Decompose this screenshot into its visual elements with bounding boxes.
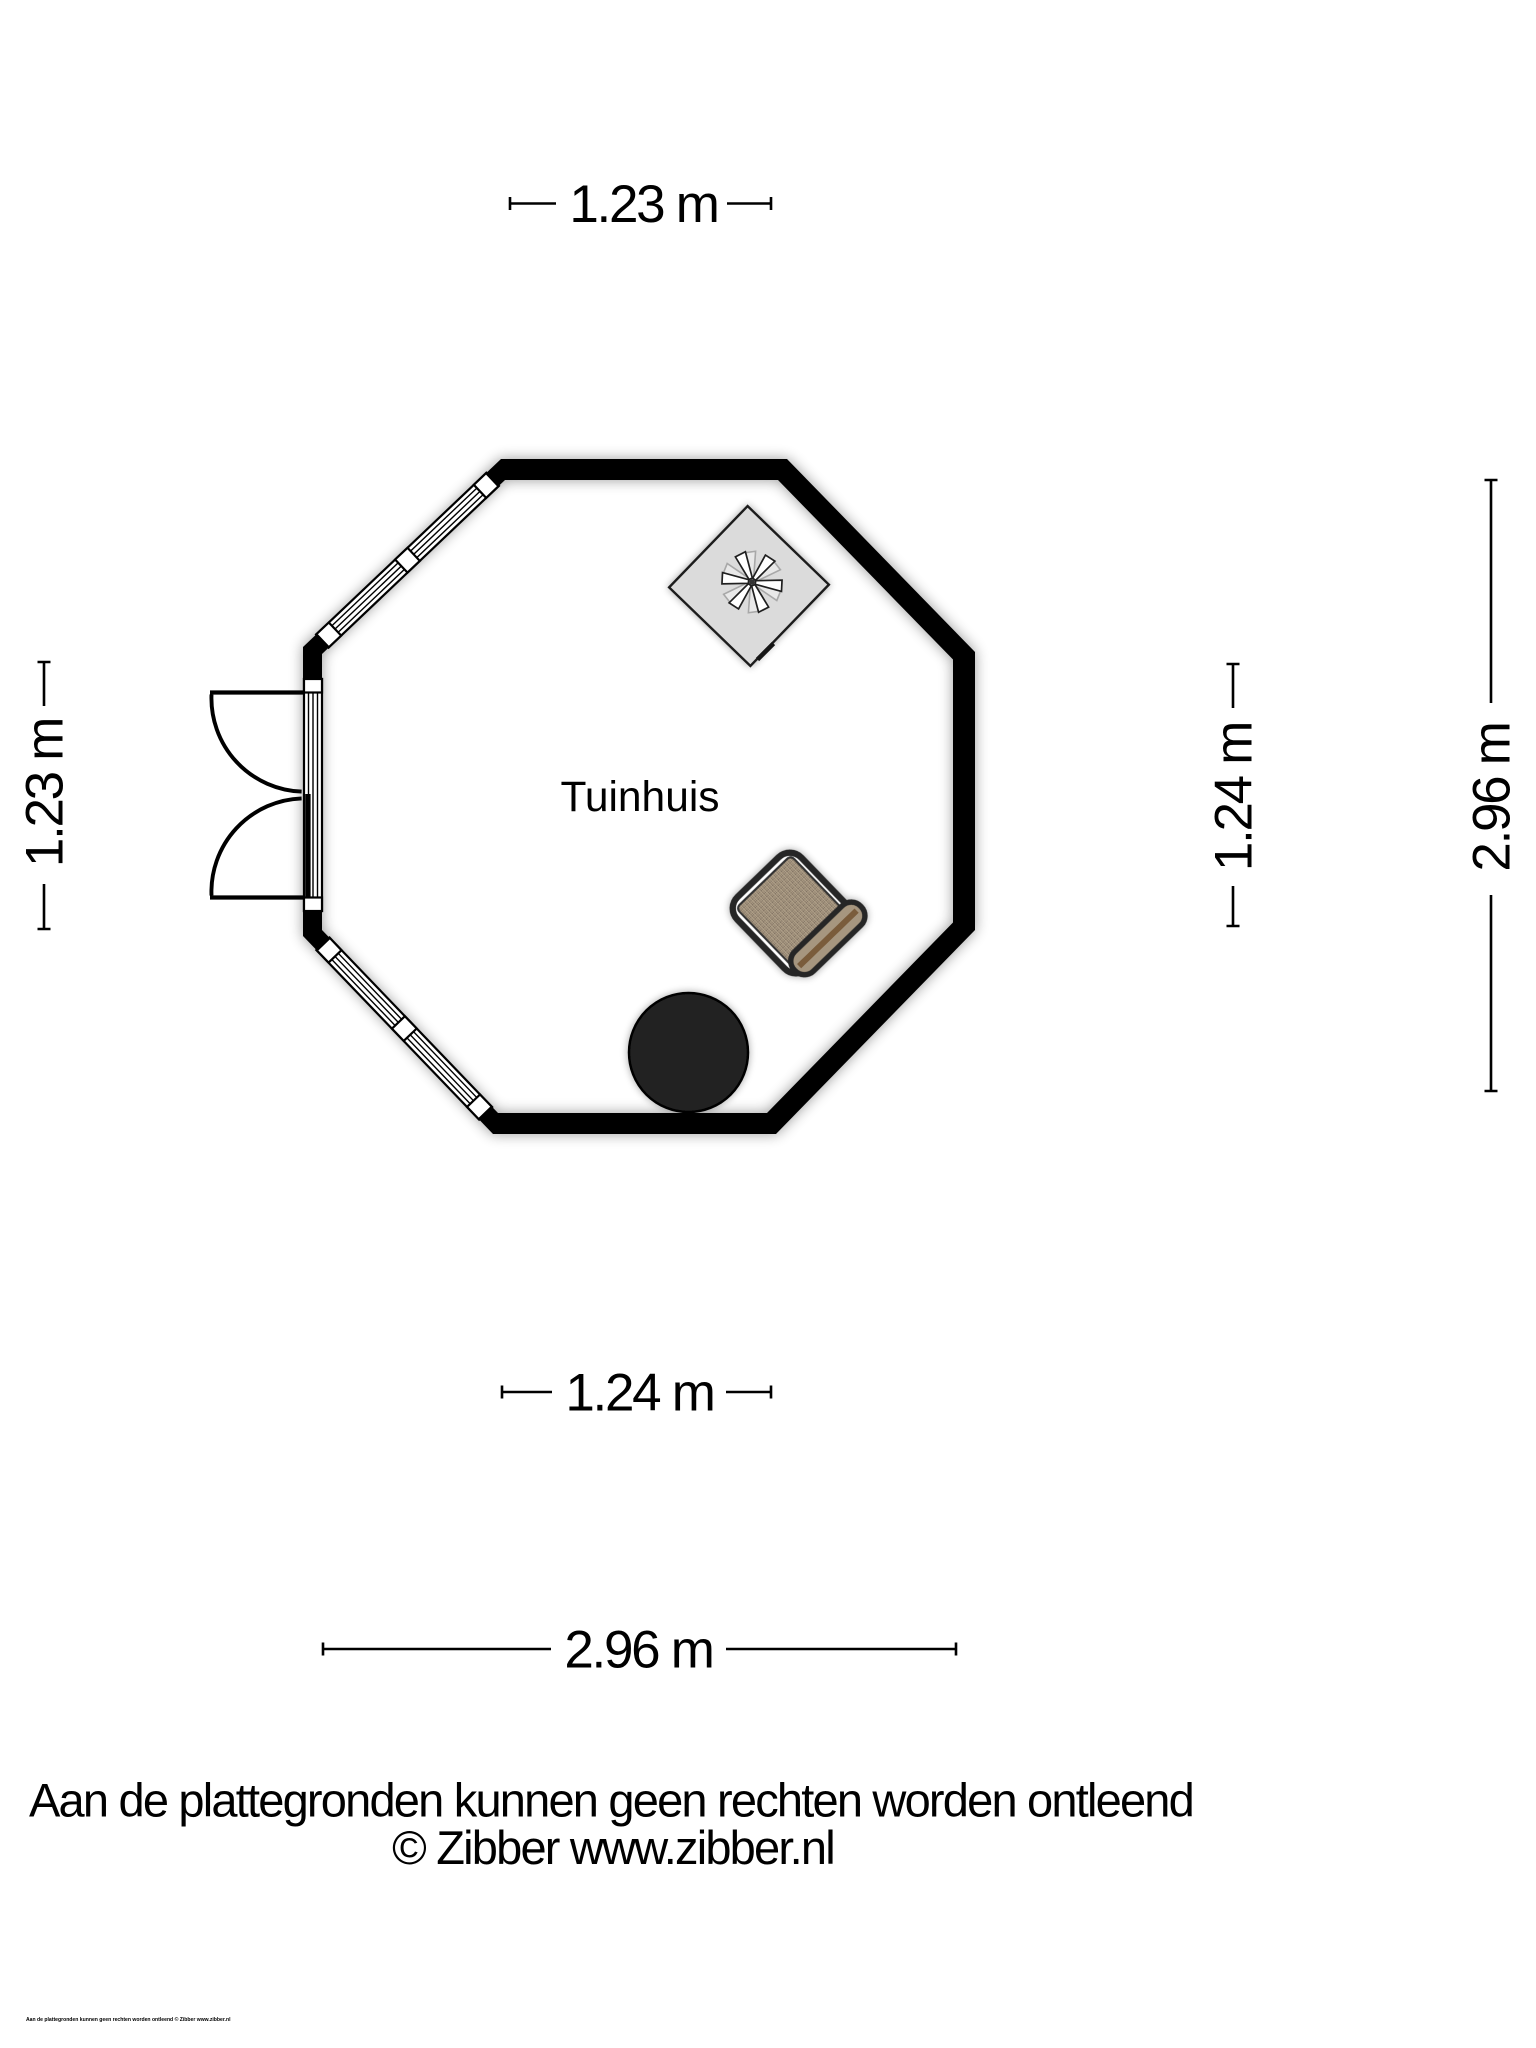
svg-text:2.96 m: 2.96 m bbox=[564, 1620, 712, 1679]
svg-text:1.23 m: 1.23 m bbox=[569, 175, 717, 234]
svg-text:1.24 m: 1.24 m bbox=[565, 1363, 713, 1422]
svg-text:1.23 m: 1.23 m bbox=[15, 719, 74, 867]
svg-text:1.24 m: 1.24 m bbox=[1204, 723, 1263, 871]
svg-text:© Zibber www.zibber.nl: © Zibber www.zibber.nl bbox=[392, 1821, 834, 1874]
svg-text:Tuinhuis: Tuinhuis bbox=[560, 774, 719, 821]
svg-text:2.96 m: 2.96 m bbox=[1462, 723, 1521, 871]
svg-text:Aan de plattegronden kunnen ge: Aan de plattegronden kunnen geen rechten… bbox=[29, 1774, 1193, 1827]
svg-text:Aan de plattegronden kunnen ge: Aan de plattegronden kunnen geen rechten… bbox=[26, 2016, 231, 2023]
